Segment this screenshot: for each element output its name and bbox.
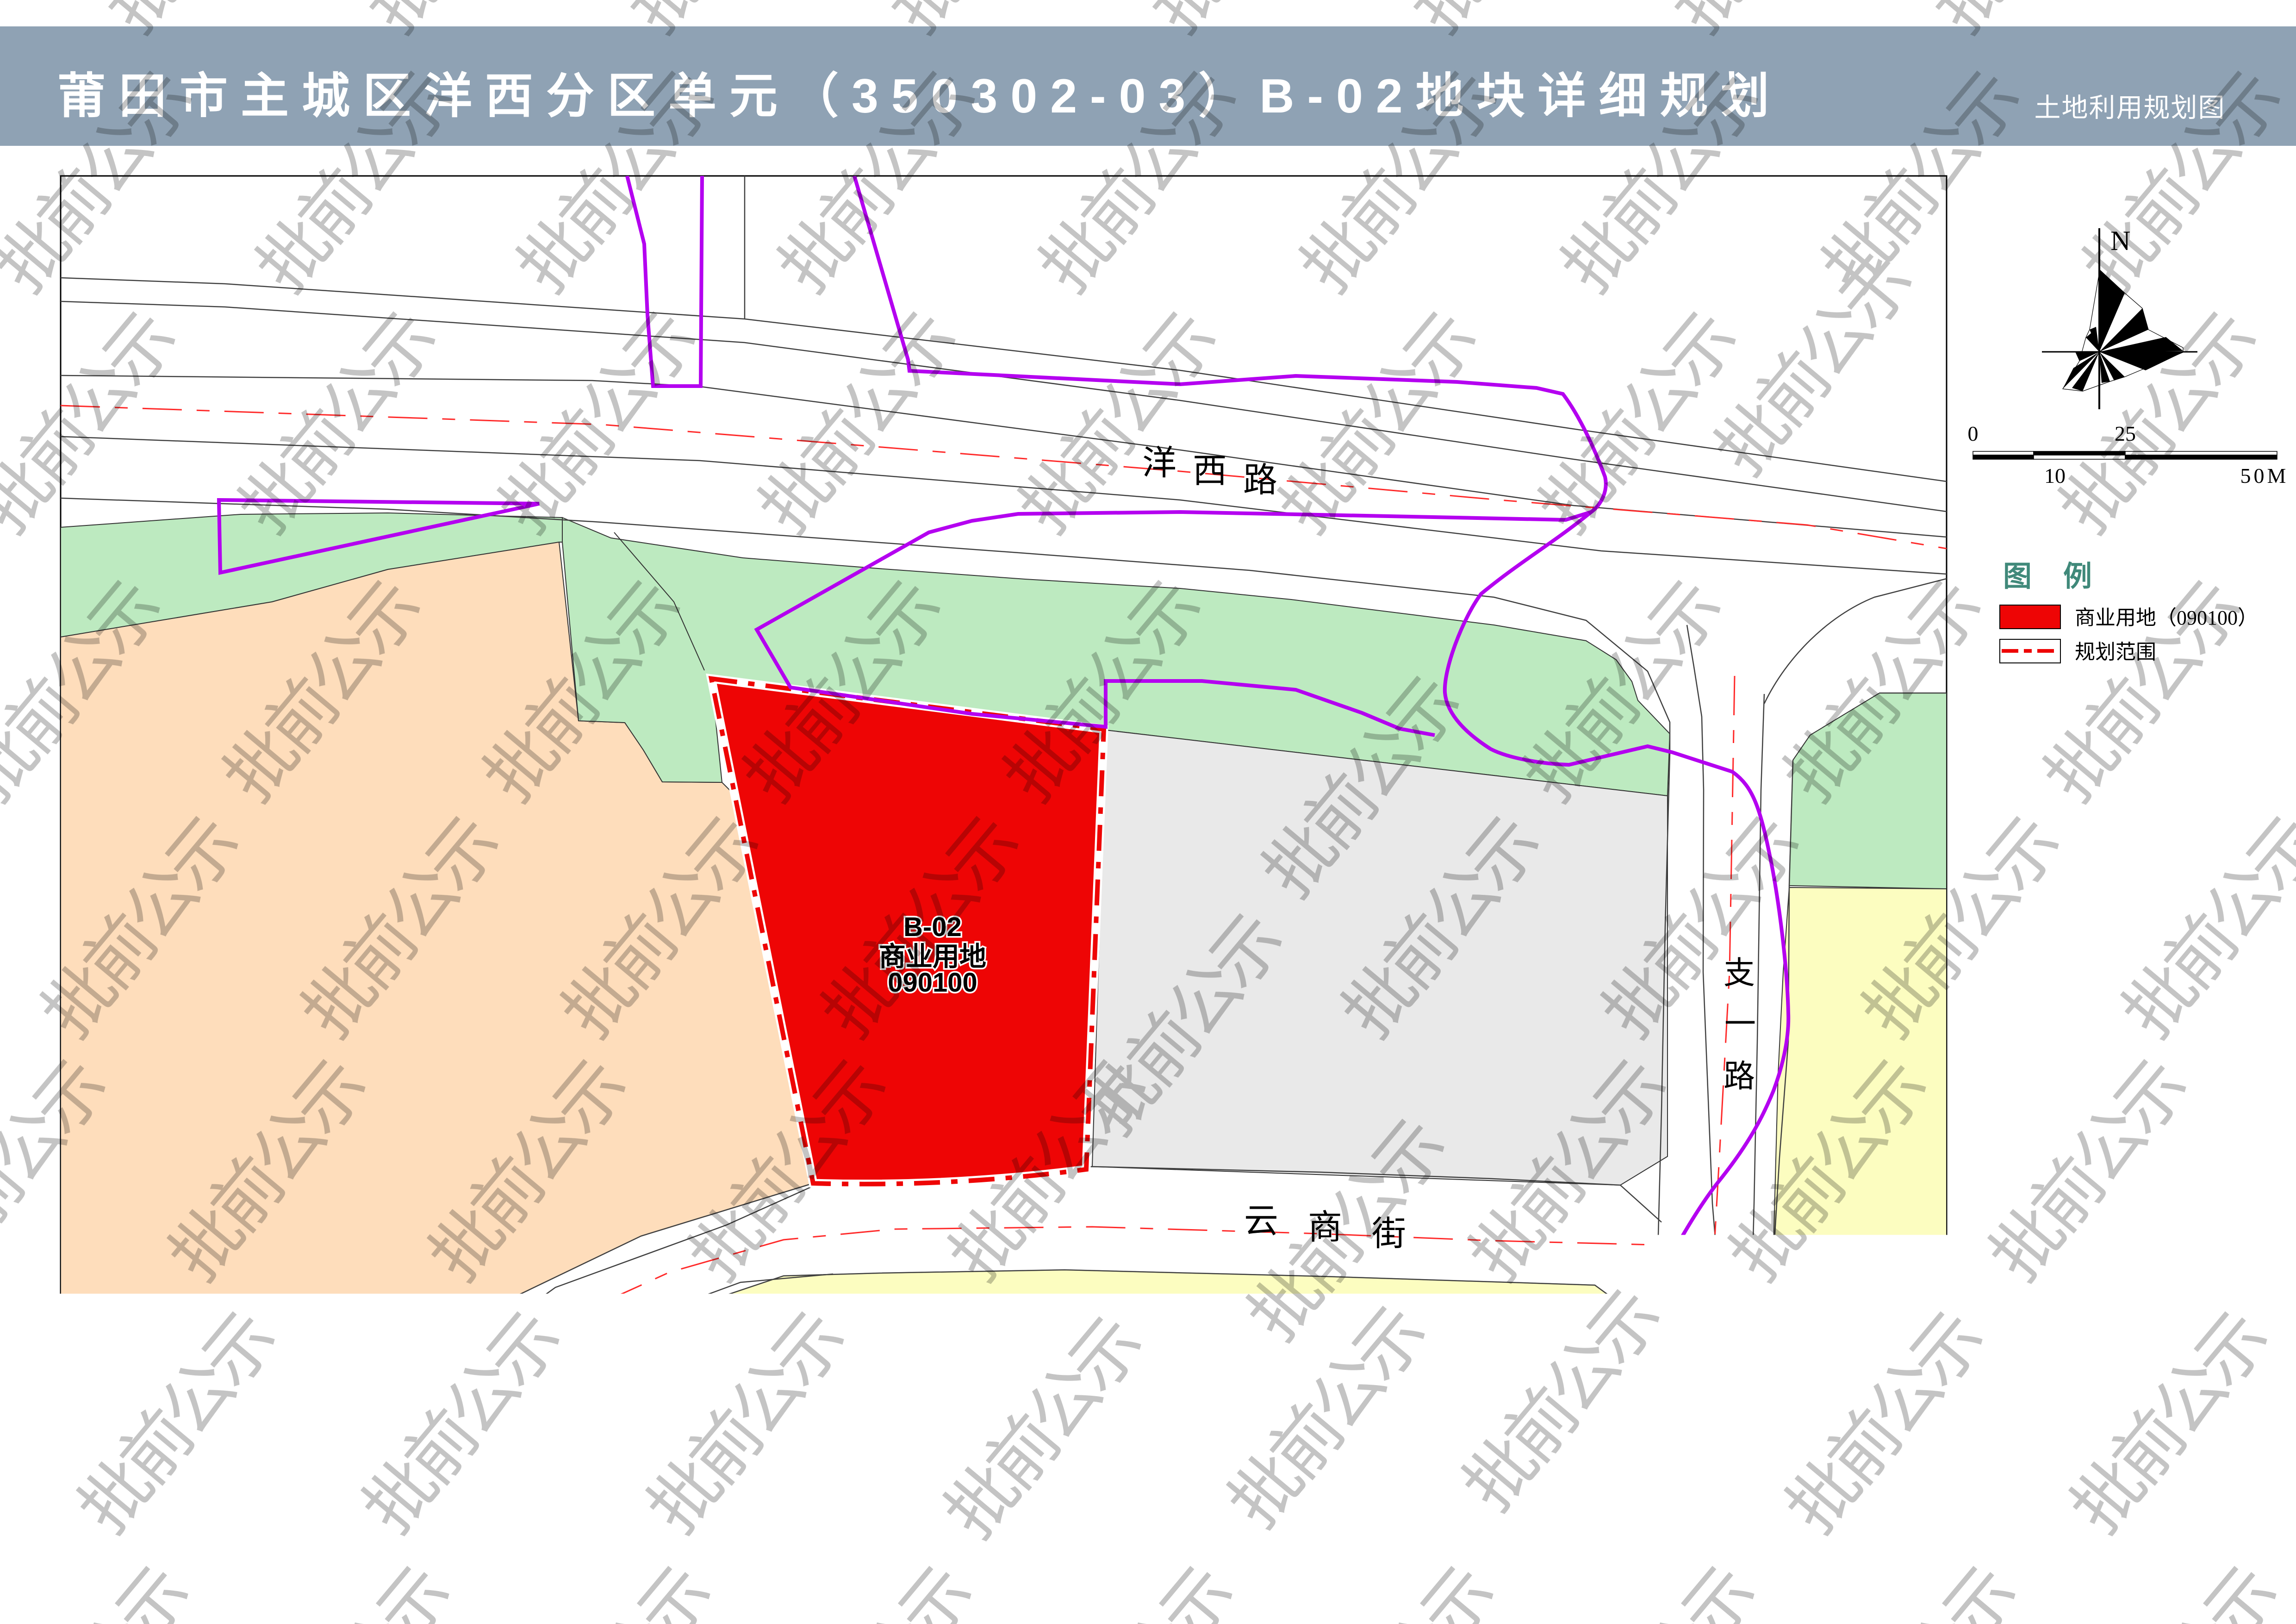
svg-text:西: 西 (1193, 452, 1227, 490)
svg-text:批前公示: 批前公示 (2109, 806, 2296, 1052)
svg-text:50M: 50M (2240, 464, 2289, 487)
svg-text:0: 0 (1968, 422, 1979, 445)
svg-text:云: 云 (1244, 1202, 1278, 1240)
svg-text:图例: 图例 (2003, 561, 2123, 593)
svg-text:批前公示: 批前公示 (2058, 1301, 2282, 1548)
svg-text:批前公示: 批前公示 (1977, 1049, 2201, 1295)
svg-text:一: 一 (1724, 1006, 1756, 1042)
svg-text:路: 路 (1724, 1059, 1755, 1094)
svg-text:批前公示: 批前公示 (2047, 301, 2271, 548)
svg-text:洋: 洋 (1142, 444, 1176, 482)
svg-text:支: 支 (1724, 956, 1755, 991)
